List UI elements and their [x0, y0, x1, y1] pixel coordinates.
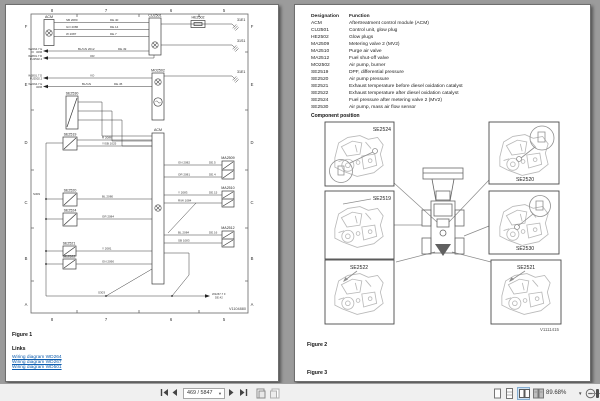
figure1-label: Figure 1	[12, 332, 212, 338]
svg-text:SE2530: SE2530	[66, 92, 79, 96]
svg-text:MO2502: MO2502	[151, 69, 165, 73]
svg-text:5: 5	[223, 317, 226, 322]
svg-text:MA2512: MA2512	[221, 226, 234, 230]
wiring-diagram-figure1: 8 7 6 5 8 7 6 5 F E D C B A F E D C B A	[6, 5, 278, 329]
engine-box-se2522: SE2522	[325, 260, 394, 324]
svg-text:DE.42: DE.42	[215, 296, 223, 300]
svg-text:SB 2080: SB 2080	[66, 18, 78, 22]
figure1-ref-number: V1104880	[229, 307, 246, 311]
component-mo2502: MO2502	[151, 69, 232, 121]
svg-text:SE2519: SE2519	[64, 133, 77, 137]
svg-text:8: 8	[51, 8, 54, 13]
page-dropdown-caret-icon[interactable]: ▼	[215, 391, 224, 396]
figure2-label: Figure 2	[307, 342, 327, 348]
svg-text:Y 2081: Y 2081	[102, 247, 112, 251]
svg-text:SE2524: SE2524	[373, 127, 391, 133]
svg-text:ACM: ACM	[45, 15, 53, 19]
svg-text:5: 5	[223, 8, 226, 13]
svg-text:GN 2082: GN 2082	[178, 161, 190, 165]
svg-text:SB 1083: SB 1083	[178, 239, 190, 243]
svg-text:D: D	[250, 140, 253, 145]
svg-text:8: 8	[51, 317, 54, 322]
svg-text:7: 7	[105, 8, 108, 13]
svg-text:DE.40: DE.40	[110, 18, 119, 22]
svg-text:R/W 1084: R/W 1084	[178, 199, 192, 203]
figure2-ref-number: V1111415	[540, 327, 560, 332]
component-ma2509: MA2509	[164, 156, 235, 179]
pdf-viewer: 8 7 6 5 8 7 6 5 F E D C B A F E D C B A	[0, 0, 600, 401]
svg-text:31E1: 31E1	[237, 70, 245, 74]
component-cu2501: CU2501	[148, 14, 232, 56]
svg-text:MA2509: MA2509	[221, 156, 234, 160]
svg-text:SE2521: SE2521	[63, 242, 76, 246]
last-page-button[interactable]	[239, 388, 249, 399]
svg-text:E: E	[251, 82, 254, 87]
svg-text:31S1: 31S1	[237, 39, 245, 43]
figure3-label: Figure 3	[307, 370, 327, 376]
svg-text:DE.14: DE.14	[110, 25, 119, 29]
next-view-button[interactable]	[270, 388, 280, 399]
document-page-right: Designation Function ACMAftertreatment c…	[294, 4, 591, 382]
svg-text:SE2522: SE2522	[350, 265, 368, 271]
wire-labels: SB 2080 DE.40 GO 2086 DE.14 W 2087 DE.7 …	[33, 18, 218, 295]
continuous-view-button[interactable]	[505, 388, 515, 399]
svg-text:MA2510: MA2510	[221, 186, 234, 190]
svg-text:OR: OR	[90, 54, 95, 58]
svg-text:E: E	[25, 82, 28, 87]
next-page-button[interactable]	[228, 388, 238, 399]
svg-text:7: 7	[105, 317, 108, 322]
engine-box-se2524: SE2524	[325, 122, 394, 186]
svg-text:DE.5: DE.5	[209, 161, 216, 165]
engine-box-se2520: SE2520	[489, 122, 559, 184]
svg-text:SE2521: SE2521	[517, 265, 535, 271]
component-se2520: SE2520	[46, 189, 152, 207]
svg-text:ACM: ACM	[154, 128, 162, 132]
svg-text:DE.45: DE.45	[114, 82, 123, 86]
links-list: Wiring diagram WD264 Wiring diagram WD26…	[12, 355, 212, 370]
zoom-slider-handle[interactable]	[596, 389, 599, 398]
svg-text:BL 2080: BL 2080	[102, 195, 113, 199]
svg-text:OR 2081: OR 2081	[178, 173, 190, 177]
svg-text:BL 2084: BL 2084	[178, 231, 189, 235]
svg-text:6: 6	[170, 317, 173, 322]
svg-text:CU2501: CU2501	[148, 14, 161, 18]
svg-text:A: A	[251, 302, 254, 307]
svg-text:C: C	[250, 200, 253, 205]
svg-text:W 2087: W 2087	[66, 32, 77, 36]
svg-text:B: B	[251, 256, 254, 261]
svg-text:SE2520: SE2520	[64, 189, 77, 193]
ground-symbols: 31E1 31S1 31E1	[232, 18, 245, 83]
two-page-continuous-view-button[interactable]	[533, 388, 543, 399]
svg-text:A: A	[25, 302, 28, 307]
single-page-view-button[interactable]	[493, 388, 503, 399]
component-position-figure: SE2524 SE2519 SE2522 SE252	[295, 5, 590, 381]
svg-text:Y 2083: Y 2083	[178, 191, 188, 195]
component-acm-center: ACM	[152, 128, 164, 284]
svg-text:D: D	[24, 140, 27, 145]
svg-text:BL/GN: BL/GN	[82, 82, 91, 86]
svg-text:S309: S309	[33, 192, 40, 196]
engine-box-se2530: SE2530	[489, 191, 559, 254]
svg-text:C: C	[24, 200, 27, 205]
svg-text:SE2524: SE2524	[64, 209, 77, 213]
svg-text:6: 6	[170, 8, 173, 13]
component-se2522: SE2522	[46, 255, 152, 270]
svg-text:S303: S303	[98, 291, 105, 295]
svg-text:SE2519: SE2519	[373, 196, 391, 202]
component-ma2512: MA2512	[164, 226, 235, 247]
svg-text:DE.15: DE.15	[209, 191, 218, 195]
svg-text:F: F	[25, 24, 28, 29]
component-acm-top: ACM	[44, 15, 149, 46]
zoom-level-value: 89.68%	[546, 390, 566, 396]
document-page-left: 8 7 6 5 8 7 6 5 F E D C B A F E D C B A	[5, 4, 279, 382]
svg-text:R 2086: R 2086	[102, 136, 112, 140]
svg-text:DE.4: DE.4	[209, 173, 216, 177]
page-number-input[interactable]: 469 / 5847 ▼	[183, 388, 225, 399]
svg-text:SE2520: SE2520	[516, 177, 534, 183]
previous-view-button[interactable]	[256, 388, 266, 399]
svg-text:Y/SB 1025: Y/SB 1025	[102, 142, 117, 146]
svg-text:BL/GN 2012: BL/GN 2012	[78, 47, 95, 51]
two-page-view-button[interactable]	[519, 388, 529, 399]
zoom-dropdown-caret-icon[interactable]: ▼	[578, 391, 582, 396]
svg-text:FU2502.2: FU2502.2	[30, 77, 43, 81]
page-indicator-value: 469 / 5847	[184, 390, 215, 396]
viewer-toolbar: 469 / 5847 ▼ 89.68% ▼	[0, 383, 600, 401]
svg-text:SE2522: SE2522	[63, 255, 76, 259]
svg-text:31E1: 31E1	[237, 18, 245, 22]
links-heading: Links	[12, 346, 212, 352]
svg-text:VO: VO	[90, 74, 95, 78]
svg-text:DE.7: DE.7	[110, 32, 117, 36]
component-se2524: SE2524	[46, 209, 152, 227]
svg-text:DE.16: DE.16	[209, 231, 218, 235]
svg-text:DE.49: DE.49	[118, 47, 127, 51]
svg-text:3296: 3296	[36, 85, 43, 89]
engine-box-se2519: SE2519	[325, 191, 394, 259]
svg-text:SE2530: SE2530	[516, 246, 534, 252]
svg-text:GR 2084: GR 2084	[102, 215, 114, 219]
link-wiring-diagram-wd501[interactable]: Wiring diagram WD501	[12, 365, 212, 370]
engine-location-marker	[435, 244, 451, 256]
svg-text:HE2502: HE2502	[192, 16, 205, 20]
svg-text:FU2502.2: FU2502.2	[30, 57, 43, 61]
svg-text:GN 2090: GN 2090	[102, 260, 114, 264]
svg-text:GO 2086: GO 2086	[66, 25, 79, 29]
previous-page-button[interactable]	[171, 388, 181, 399]
machine-top-view	[422, 168, 464, 256]
engine-box-se2521: SE2521	[491, 260, 561, 324]
component-he2502: HE2502	[191, 16, 205, 28]
first-page-button[interactable]	[160, 388, 170, 399]
svg-text:F: F	[251, 24, 254, 29]
offpage-ref-bottom: W2267.7 F DE.42	[205, 292, 226, 300]
svg-text:B: B	[25, 256, 28, 261]
